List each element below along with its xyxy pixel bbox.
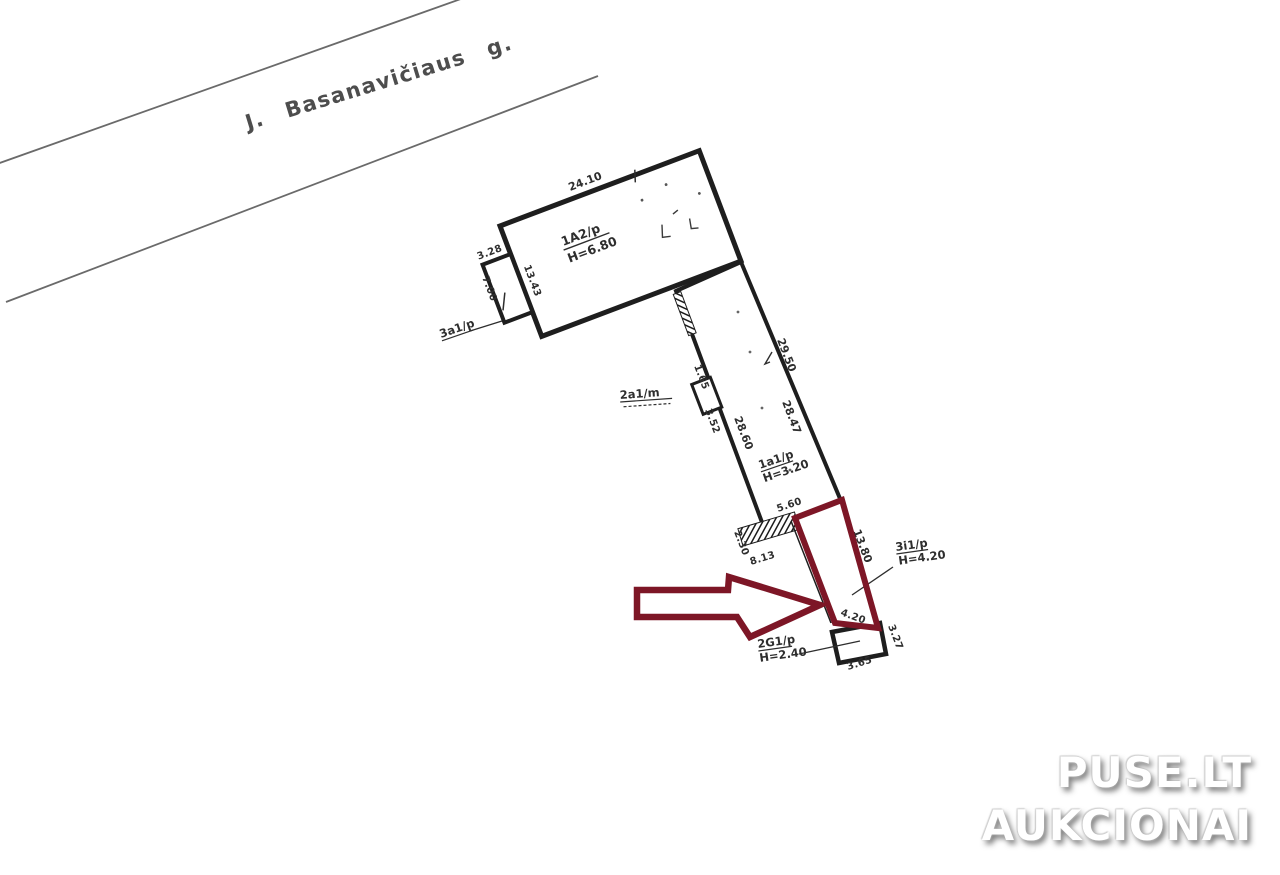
annex-label-group: 3a1/p — [437, 316, 476, 341]
garage-label-group: 2G1/p H=2.40 — [756, 630, 807, 664]
scan-dot — [761, 407, 764, 410]
watermark-line2: AUKCIONAI — [982, 799, 1252, 853]
mid-label-group: 2a1/m — [619, 384, 672, 407]
street-name-label: J. Basanavičiaus g. — [241, 31, 516, 136]
site-plan-page: J. Basanavičiaus g. 24.10 3.28 7.00 13.4… — [0, 0, 1280, 875]
site-plan-drawing: J. Basanavičiaus g. 24.10 3.28 7.00 13.4… — [0, 0, 1280, 875]
annex-unit-label: 3a1/p — [437, 316, 476, 341]
highlighted-label-group: 3i1/p H=4.20 — [894, 533, 946, 567]
highlight-arrow — [637, 577, 820, 637]
watermark: PUSE.LT AUKCIONAI — [982, 746, 1252, 854]
dim-garage-right: 3.27 — [885, 623, 905, 651]
scan-dot — [749, 351, 752, 354]
scan-dot — [737, 311, 740, 314]
watermark-line1: PUSE.LT — [982, 746, 1252, 800]
dim-porch-bottom: 8.13 — [749, 550, 777, 568]
mid-unit-dashed-line — [624, 403, 671, 406]
